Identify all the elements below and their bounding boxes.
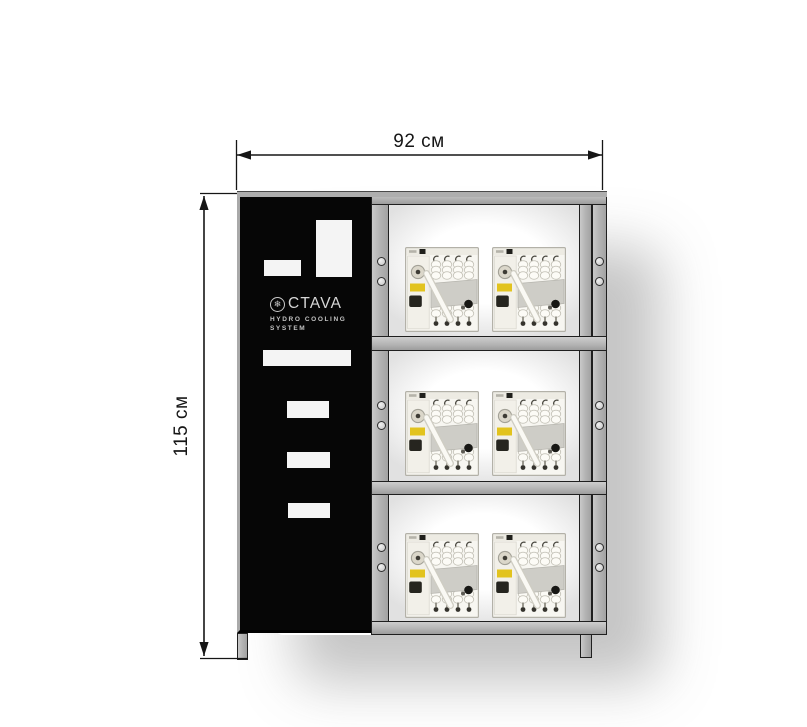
arrowhead-up — [199, 196, 208, 210]
unit-port — [420, 249, 426, 254]
unit-knob — [464, 444, 473, 453]
unit-connector — [496, 582, 509, 594]
unit-warning-label — [410, 570, 425, 578]
unit-warning-label — [410, 284, 425, 292]
height-label: 115 см — [171, 395, 192, 456]
mount-hole — [377, 543, 386, 552]
unit-knob — [551, 586, 560, 595]
rack-post-right-inner — [579, 192, 592, 635]
unit-warning-label — [497, 570, 512, 578]
mount-hole — [595, 277, 604, 286]
unit-connector — [409, 582, 422, 594]
unit-port — [507, 393, 513, 398]
hydro-cooling-unit — [405, 391, 479, 476]
unit-port — [420, 535, 426, 540]
rack-rail-bottom — [371, 621, 607, 635]
mount-hole — [377, 563, 386, 572]
panel-cutout — [263, 350, 351, 366]
width-label: 92 см — [393, 131, 444, 152]
mount-hole — [377, 257, 386, 266]
mount-hole — [595, 257, 604, 266]
mount-hole — [377, 421, 386, 430]
front-panel: ❄ CTAVA HYDRO COOLING SYSTEM — [237, 192, 372, 633]
mount-hole — [595, 543, 604, 552]
arrowhead-down — [199, 642, 208, 656]
hydro-cooling-unit — [492, 247, 566, 332]
rack-shelf-rail — [371, 336, 607, 351]
unit-knob — [551, 444, 560, 453]
mount-hole — [377, 401, 386, 410]
product-dimension-diagram: ❄ CTAVA HYDRO COOLING SYSTEM — [0, 0, 807, 727]
brand-logo: ❄ CTAVA HYDRO COOLING SYSTEM — [270, 295, 346, 332]
unit-connector — [409, 296, 422, 308]
unit-warning-label — [497, 428, 512, 436]
cabinet-leg-left — [237, 633, 248, 660]
unit-warning-label — [410, 428, 425, 436]
unit-port — [507, 535, 513, 540]
panel-cutout — [287, 452, 330, 468]
rack-shelf-rail — [371, 481, 607, 495]
unit-connector — [409, 440, 422, 452]
brand-subtitle-line1: HYDRO COOLING — [270, 316, 346, 323]
unit-port — [420, 393, 426, 398]
unit-port — [507, 249, 513, 254]
width-dimension: 92 см — [237, 131, 603, 190]
brand-name: CTAVA — [288, 295, 342, 313]
unit-warning-label — [497, 284, 512, 292]
unit-connector — [496, 296, 509, 308]
panel-cutout — [264, 260, 301, 276]
arrowhead-right — [588, 150, 602, 159]
panel-cutout — [287, 401, 329, 418]
mount-hole — [595, 401, 604, 410]
hydro-cooling-unit — [405, 533, 479, 618]
cabinet-leg-right — [580, 634, 592, 658]
unit-knob — [551, 300, 560, 309]
arrowhead-left — [237, 150, 251, 159]
hydro-cooling-unit — [405, 247, 479, 332]
hydro-cooling-unit — [492, 391, 566, 476]
mount-hole — [377, 277, 386, 286]
mount-hole — [595, 421, 604, 430]
panel-cutout — [288, 503, 330, 518]
brand-subtitle-line2: SYSTEM — [270, 325, 346, 332]
cabinet-top-edge — [237, 191, 607, 197]
snowflake-icon: ❄ — [270, 297, 285, 312]
unit-connector — [496, 440, 509, 452]
mount-hole — [595, 563, 604, 572]
hydro-cooling-unit — [492, 533, 566, 618]
panel-cutout — [316, 220, 352, 277]
unit-knob — [464, 586, 473, 595]
unit-knob — [464, 300, 473, 309]
